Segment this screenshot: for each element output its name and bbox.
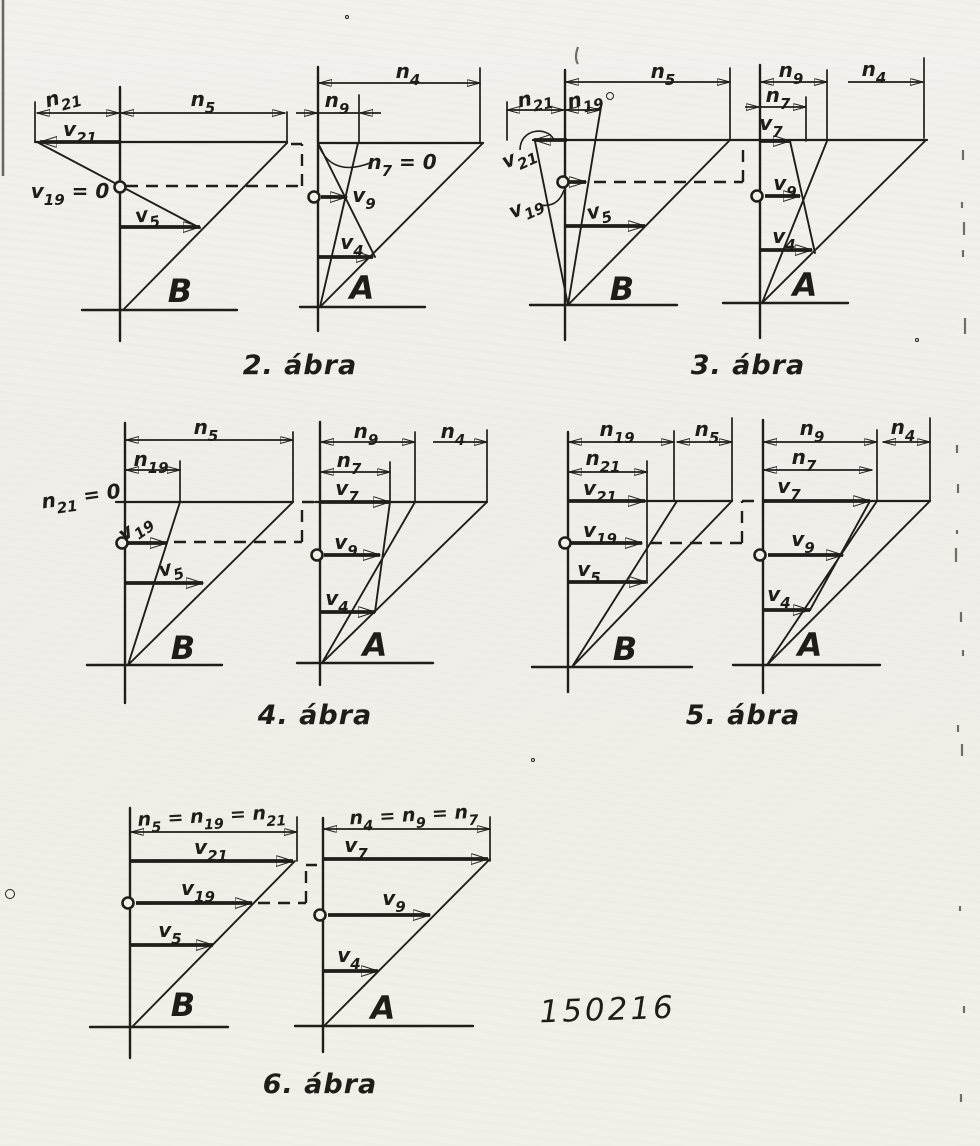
fig2-label-n4: n4: [396, 59, 421, 89]
figure-2-caption: 2. ábra: [243, 350, 358, 381]
fig5-dashed-link: [650, 501, 756, 543]
fig3-a-carrier-node: [752, 191, 763, 202]
scan-pen-flick: [576, 47, 578, 64]
fig2-b-axis: [82, 87, 237, 341]
fig6-dashed-link: [258, 865, 317, 903]
fig3-label-n9: n9: [779, 58, 804, 88]
fig5-b-carrier-node: [560, 538, 571, 549]
figure-6: n5 = n19 = n21 v21 v19 v5 B n4 = n9 = n7…: [90, 801, 490, 1100]
figure-3: n5 n21 n19 v21 v19 v5 B n9 n4 n7 v7 v9 v…: [498, 57, 927, 381]
fig2-dashed-link: [126, 144, 302, 186]
scanned-page: n21 n5 v21 v19 = 0 v5 B n4 n9 n7 = 0 v9 …: [0, 0, 980, 1146]
fig5-label-v9: v9: [791, 527, 814, 557]
fig2-label-wheel-B: B: [168, 272, 192, 310]
fig4-b-extension-lines: [180, 432, 293, 502]
fig4-a-extension-lines: [390, 430, 487, 502]
figure-3-caption: 3. ábra: [691, 350, 806, 381]
fig3-label-v21: v21: [498, 138, 541, 179]
fig5-label-n4: n4: [891, 415, 916, 445]
scan-right-margin-marks: [956, 150, 965, 1102]
fig6-b-carrier-node: [123, 898, 134, 909]
diagram-canvas: n21 n5 v21 v19 = 0 v5 B n4 n9 n7 = 0 v9 …: [0, 0, 980, 1146]
fig4-label-n9: n9: [354, 419, 379, 449]
fig4-label-wheel-B: B: [171, 629, 195, 667]
fig2-label-v19-zero: v19 = 0: [31, 179, 110, 209]
fig4-a-carrier-node: [312, 550, 323, 561]
fig5-a-carrier-node: [755, 550, 766, 561]
fig4-dashed-link: [174, 502, 314, 542]
fig6-a-speed-line: [325, 859, 490, 1025]
fig2-n7-leader-curve: [319, 146, 370, 167]
fig2-carrier-node: [115, 182, 126, 193]
fig5-label-wheel-B: B: [613, 630, 637, 668]
fig3-label-n21: n21: [515, 82, 556, 119]
fig3-label-v19: v19: [505, 188, 548, 229]
fig2-label-n7-zero: n7 = 0: [367, 150, 436, 180]
figure-6-caption: 6. ábra: [263, 1069, 378, 1100]
fig4-label-wheel-A: A: [360, 626, 388, 664]
fig6-label-wheel-A: A: [368, 989, 396, 1027]
figure-4: n5 n19 n21 = 0 v19 v5 B n9 n4 n7 v7 v9 v…: [40, 415, 487, 731]
fig5-label-v4: v4: [767, 582, 790, 612]
fig5-a-speed-lines: [767, 501, 930, 665]
fig4-label-n7: n7: [337, 448, 362, 478]
fig5-label-wheel-A: A: [795, 626, 823, 664]
fig3-a-speed-lines: [762, 141, 925, 303]
figure-4-caption: 4. ábra: [257, 700, 373, 731]
handwritten-number: 150216: [539, 990, 677, 1031]
fig3-label-wheel-B: B: [610, 270, 634, 308]
figure-5: n19 n5 n21 v21 v19 v5 B n9 n4 n7 v7 v9 v…: [532, 415, 930, 731]
fig4-label-n21-zero: n21 = 0: [40, 479, 123, 520]
fig6-label-v9: v9: [382, 886, 405, 916]
fig3-label-n5: n5: [651, 59, 676, 89]
fig3-label-v7: v7: [759, 111, 783, 141]
fig2-label-wheel-A: A: [347, 269, 375, 307]
fig3-b-carrier-node: [558, 177, 569, 188]
fig2-a-carrier-node: [309, 192, 320, 203]
fig6-a-carrier-node: [315, 910, 326, 921]
fig2-label-v9: v9: [352, 183, 375, 213]
fig3-v19-leader-curve: [540, 190, 564, 205]
fig4-a-speed-lines: [322, 502, 487, 663]
fig6-label-dims-a: n4 = n9 = n7: [349, 801, 479, 836]
fig4-label-n4: n4: [441, 419, 466, 449]
figure-2: n21 n5 v21 v19 = 0 v5 B n4 n9 n7 = 0 v9 …: [31, 59, 483, 381]
fig3-label-n7: n7: [766, 83, 791, 113]
fig4-label-n19: n19: [133, 447, 168, 477]
fig6-label-wheel-B: B: [171, 986, 195, 1024]
fig6-label-v4: v4: [337, 943, 360, 973]
fig3-label-wheel-A: A: [790, 266, 818, 304]
figure-5-caption: 5. ábra: [686, 700, 801, 731]
